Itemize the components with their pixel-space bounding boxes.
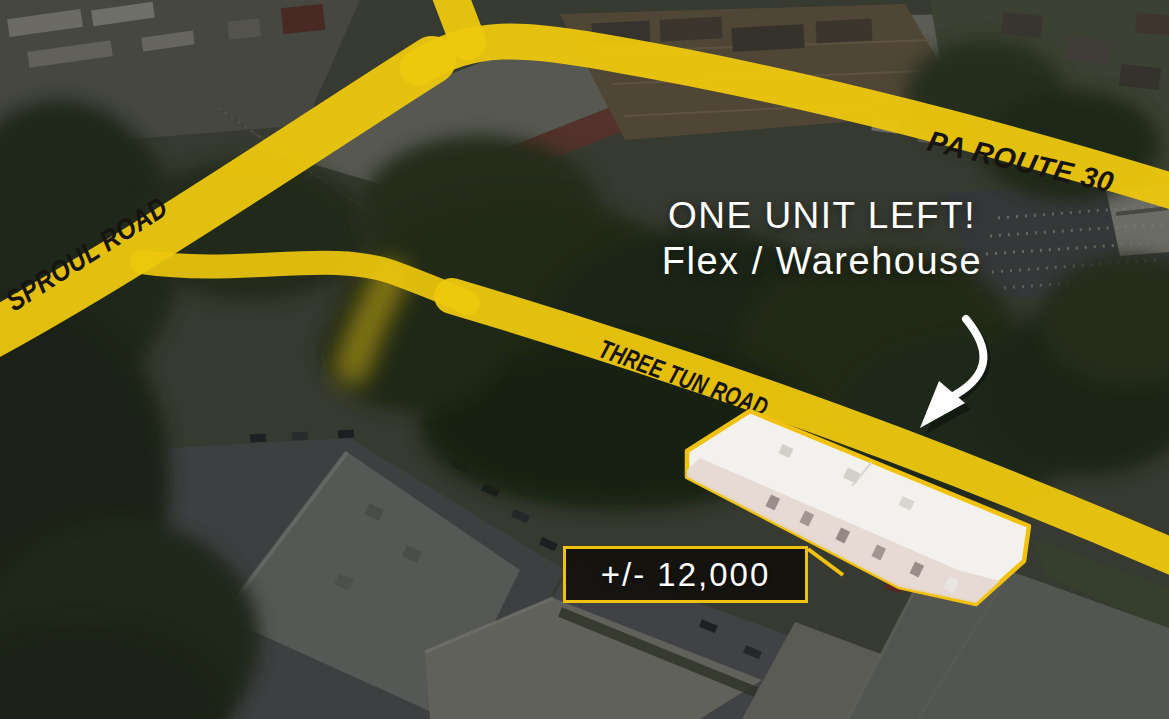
page: SPROUL ROAD PA ROUTE 30 THREE TUN ROAD bbox=[0, 0, 1169, 719]
dim-overlay bbox=[0, 0, 1169, 719]
background-photo bbox=[0, 0, 1169, 719]
size-callout-label: +/- 12,000 bbox=[601, 556, 771, 594]
headline-line1: ONE UNIT LEFT! bbox=[612, 193, 1032, 238]
headline-line2: Flex / Warehouse bbox=[612, 238, 1032, 284]
headline: ONE UNIT LEFT! Flex / Warehouse bbox=[612, 193, 1032, 284]
size-callout: +/- 12,000 bbox=[563, 546, 808, 603]
aerial-scene: SPROUL ROAD PA ROUTE 30 THREE TUN ROAD bbox=[0, 0, 1169, 719]
